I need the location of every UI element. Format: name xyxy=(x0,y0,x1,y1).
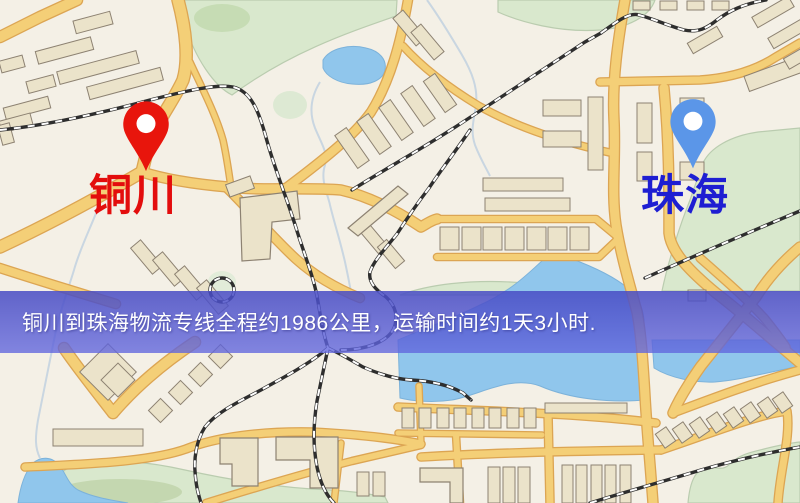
route-info-text: 铜川到珠海物流专线全程约1986公里，运输时间约1天3小时. xyxy=(0,307,596,337)
destination-city-label: 珠海 xyxy=(641,175,729,218)
logistics-route-map: 铜川 珠海 铜川到珠海物流专线全程约1986公里，运输时间约1天3小时. xyxy=(0,0,800,503)
destination-blue-map-pin-icon[interactable] xyxy=(667,96,719,171)
origin-city-label: 铜川 xyxy=(89,175,177,218)
route-info-banner: 铜川到珠海物流专线全程约1986公里，运输时间约1天3小时. xyxy=(0,291,800,353)
map-canvas[interactable] xyxy=(0,0,800,503)
origin-red-map-pin-icon[interactable] xyxy=(120,97,172,175)
